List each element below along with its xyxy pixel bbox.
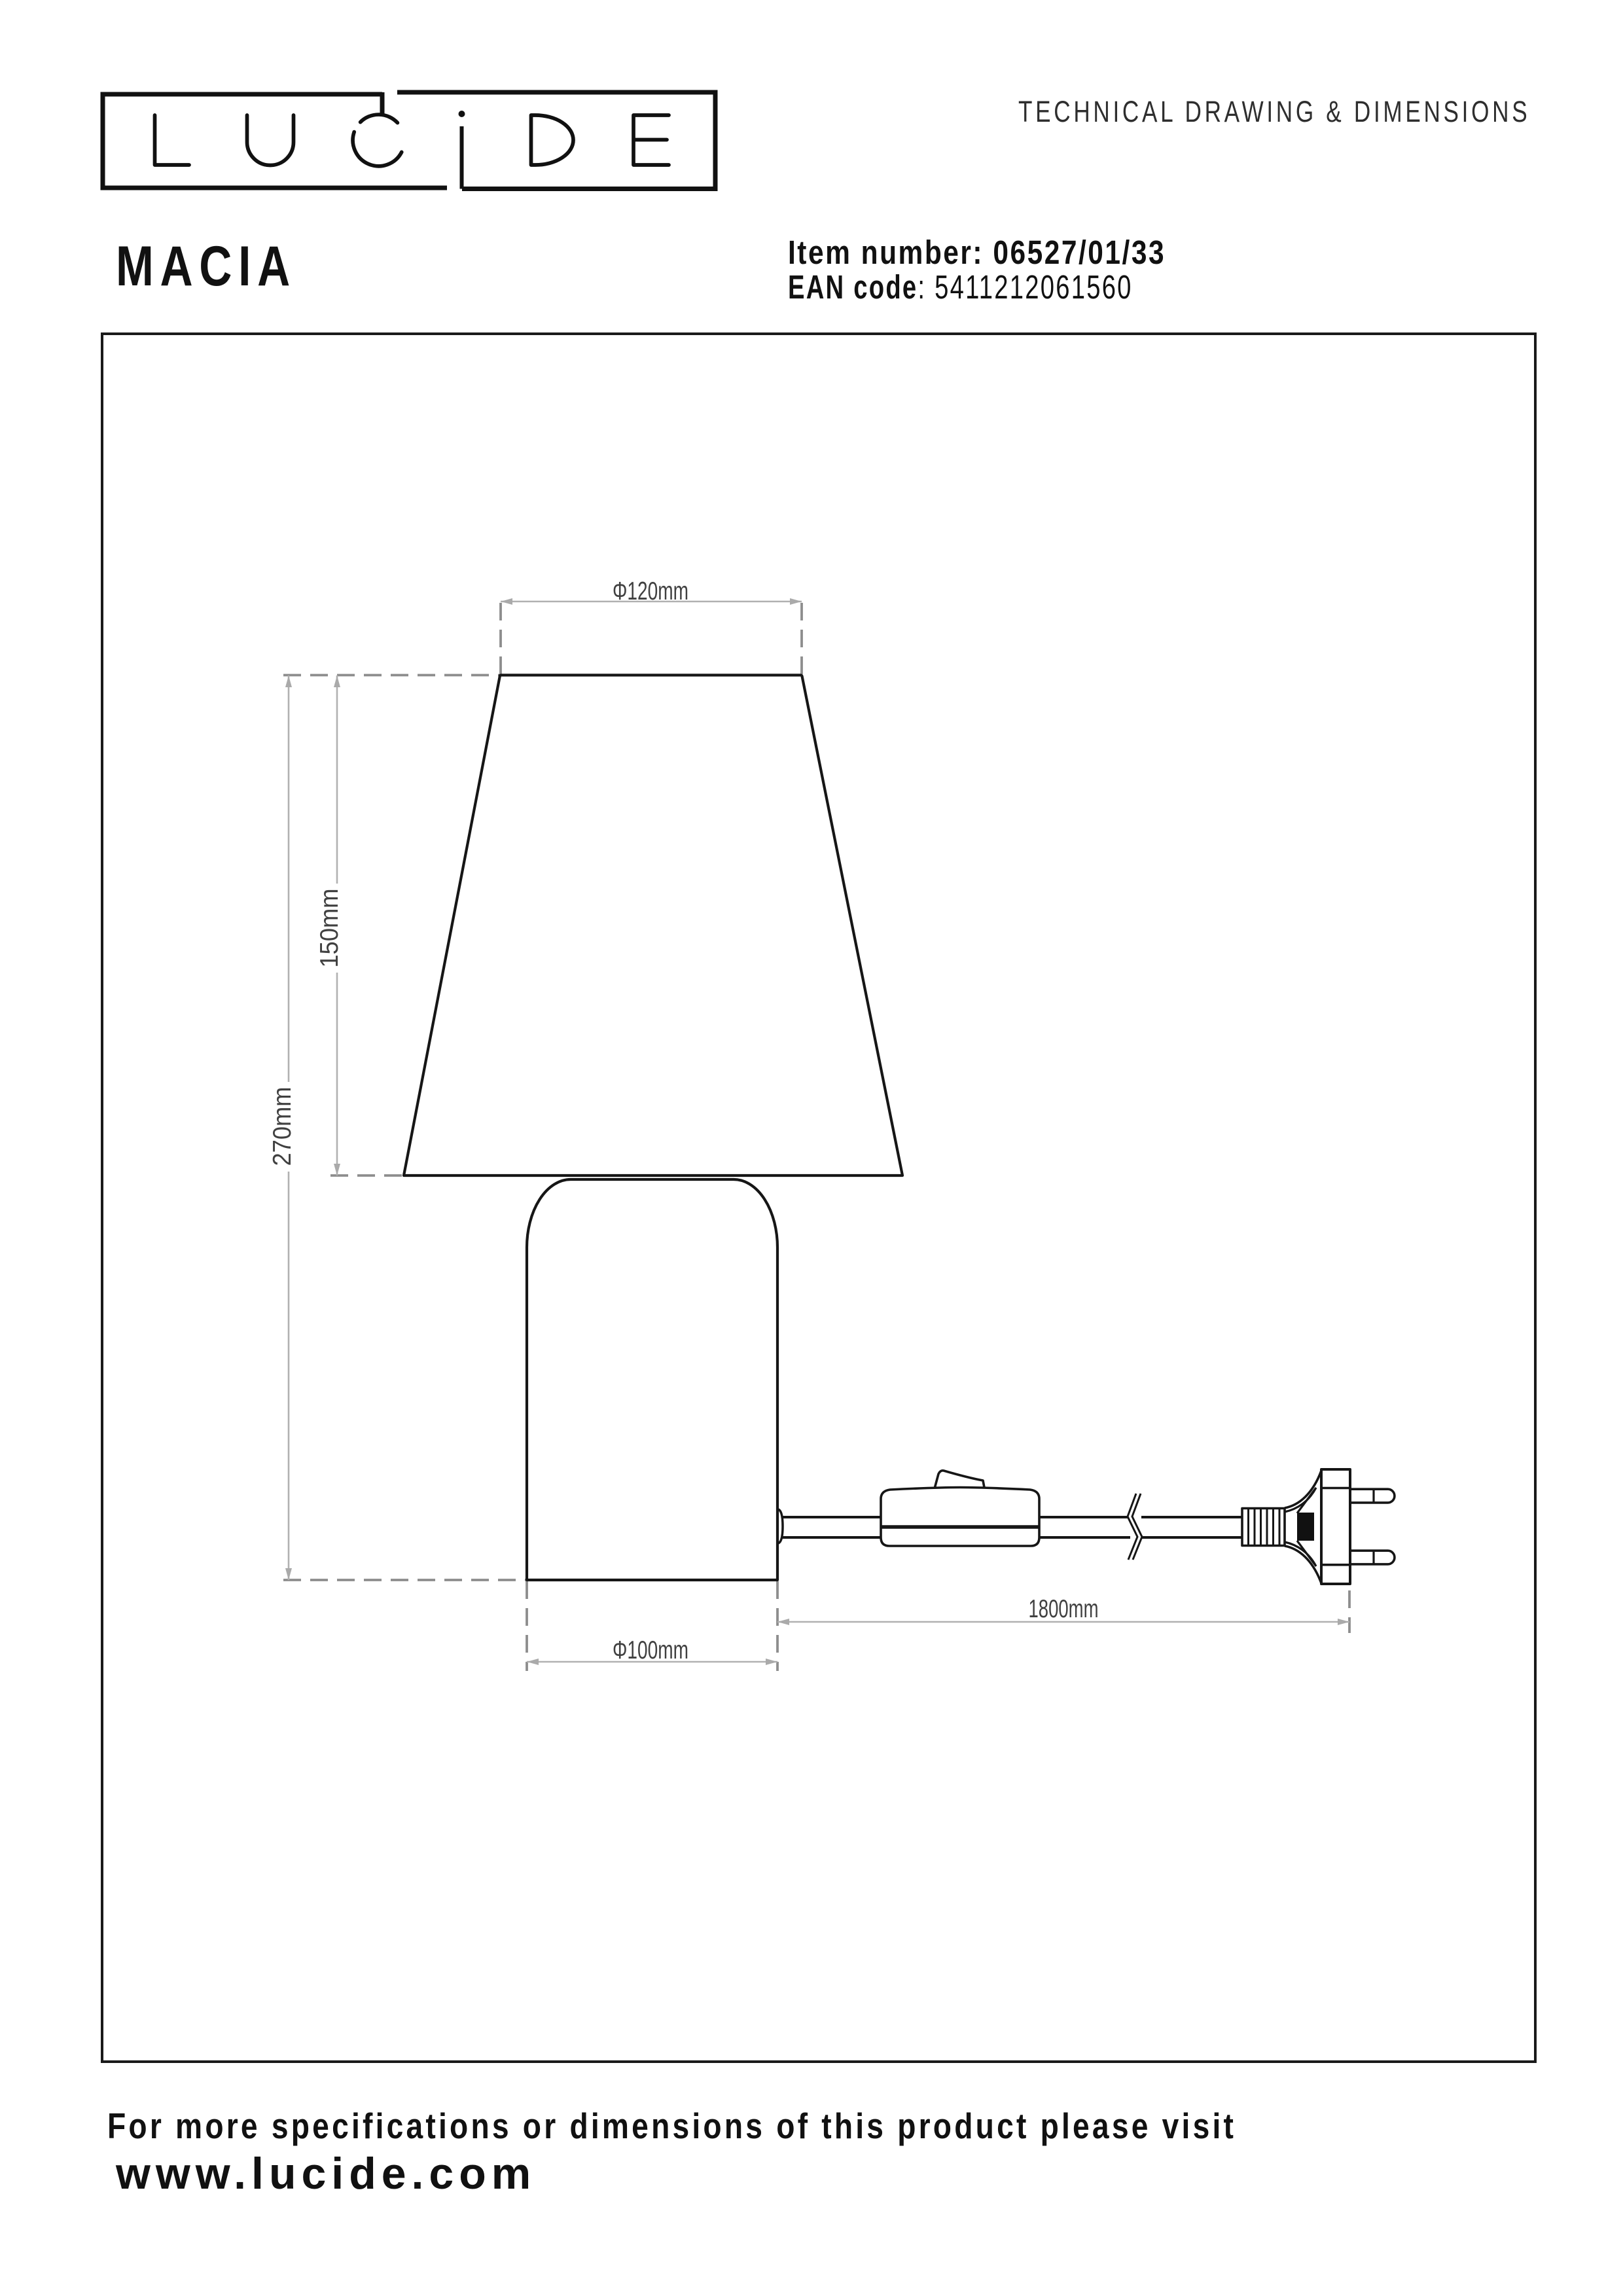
svg-text:Φ120mm: Φ120mm [613, 577, 688, 605]
svg-text:270mm: 270mm [268, 1087, 296, 1166]
svg-text:1800mm: 1800mm [1029, 1595, 1099, 1623]
svg-text:Φ100mm: Φ100mm [613, 1636, 688, 1664]
svg-text:150mm: 150mm [315, 889, 344, 968]
